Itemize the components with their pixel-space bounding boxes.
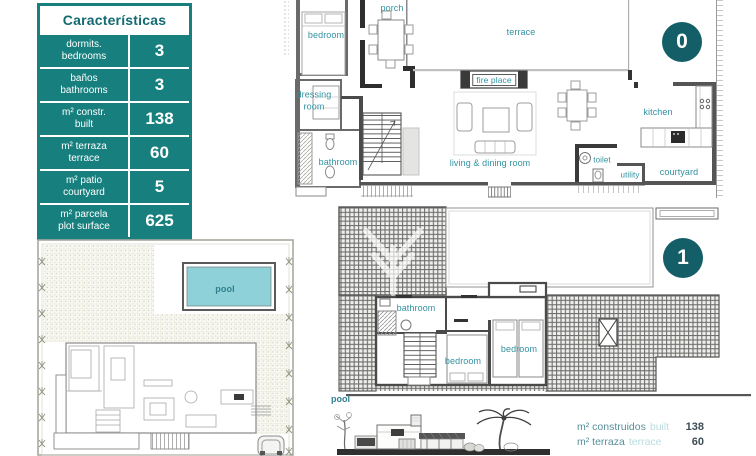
room-label-courtyard: courtyard xyxy=(660,167,698,177)
skylight xyxy=(599,319,617,346)
row-label: m² terraza terrace xyxy=(40,137,128,169)
room-label-utility: utility xyxy=(621,171,640,180)
room-label-bathroom: bathroom xyxy=(319,157,358,167)
room-label-porch: porch xyxy=(380,3,403,13)
room-label-fireplace: fire place xyxy=(472,74,516,86)
roof-terrace-hatch-left xyxy=(339,295,376,391)
dotted-ground-strip xyxy=(283,0,289,55)
table-row: m² constr. built 138 xyxy=(40,103,189,135)
pool-label: pool xyxy=(215,284,234,294)
first-floor-plan: bathroom bedroom bedroom xyxy=(336,203,756,403)
sink xyxy=(326,166,335,178)
ground-band xyxy=(337,449,550,455)
site-plan: pool xyxy=(36,230,300,456)
label-en: built xyxy=(75,119,93,132)
row-label: baños bathrooms xyxy=(40,69,128,101)
ground-floor-plan: bedroom porch terrace fire place dressin… xyxy=(283,0,723,200)
summary-value: 138 xyxy=(686,421,704,433)
summary-value: 60 xyxy=(692,436,704,448)
label-en: courtyard xyxy=(63,187,105,200)
roof-detail-bar xyxy=(656,208,718,219)
characteristics-title: Características xyxy=(40,6,189,33)
label-en: bathrooms xyxy=(60,85,107,98)
label-es: m² parcela xyxy=(60,209,107,222)
area-summary: m² construidos built 138 m² terraza terr… xyxy=(577,421,704,451)
label-en: bedrooms xyxy=(62,51,106,64)
summary-label-en: terrace xyxy=(629,436,662,448)
oven xyxy=(671,131,685,143)
roof-terrace-hatch-right xyxy=(546,295,719,391)
room-label-kitchen: kitchen xyxy=(643,107,672,117)
room-label-bedroom-left: bedroom xyxy=(445,356,481,366)
floor-1-badge: 1 xyxy=(663,238,703,278)
summary-label-en: built xyxy=(650,421,669,433)
palm-tree xyxy=(477,409,531,451)
garden-steps xyxy=(488,187,511,197)
room-label-bathroom: bathroom xyxy=(397,303,436,313)
table-row: baños bathrooms 3 xyxy=(40,69,189,101)
summary-row: m² construidos built 138 xyxy=(577,421,704,433)
row-label: dormits. bedrooms xyxy=(40,35,128,67)
house-elevation xyxy=(355,415,465,449)
room-label-toilet: toilet xyxy=(593,156,611,165)
label-es: m² terraza xyxy=(61,141,107,154)
row-value: 3 xyxy=(130,35,189,67)
row-value: 60 xyxy=(130,137,189,169)
elevation-drawing xyxy=(315,408,550,456)
room-label-bedroom: bedroom xyxy=(308,30,344,40)
property-floorplan-sheet: Características dormits. bedrooms 3 baño… xyxy=(0,0,756,456)
room-label-living-dining: living & dining room xyxy=(450,158,531,168)
site-plan-drawing xyxy=(36,230,300,456)
table-row: dormits. bedrooms 3 xyxy=(40,35,189,67)
toilet-fixture xyxy=(326,134,334,150)
row-value: 5 xyxy=(130,171,189,203)
pool-label: pool xyxy=(331,394,350,404)
label-es: dormits. xyxy=(66,39,102,52)
label-en: terrace xyxy=(68,153,99,166)
summary-row: m² terraza terrace 60 xyxy=(577,436,704,448)
row-label: m² patio courtyard xyxy=(40,171,128,203)
row-label: m² constr. built xyxy=(40,103,128,135)
house-elevation-sketch xyxy=(315,408,550,456)
tree xyxy=(335,413,352,450)
row-value: 3 xyxy=(130,69,189,101)
label-es: m² constr. xyxy=(62,107,106,120)
table-row: m² terraza terrace 60 xyxy=(40,137,189,169)
summary-label-es: m² construidos xyxy=(577,421,646,433)
label-es: m² patio xyxy=(66,175,102,188)
row-value: 138 xyxy=(130,103,189,135)
garden-texture xyxy=(43,245,154,342)
floor-0-badge: 0 xyxy=(662,22,702,62)
dining-set xyxy=(558,81,596,130)
characteristics-table: Características dormits. bedrooms 3 baño… xyxy=(37,3,192,240)
car xyxy=(258,436,284,456)
summary-label-es: m² terraza xyxy=(577,436,625,448)
room-label-dressing-room: dressing room xyxy=(290,89,338,112)
toilet-room xyxy=(575,144,617,185)
table-row: m² patio courtyard 5 xyxy=(40,171,189,203)
shower xyxy=(298,133,312,184)
living-room-furniture xyxy=(454,92,536,155)
bed xyxy=(302,12,345,75)
ground-floor-drawing xyxy=(283,0,723,200)
room-label-terrace: terrace xyxy=(507,27,536,37)
room-label-bedroom-right: bedroom xyxy=(501,344,537,354)
property-edge-hatch xyxy=(717,0,723,198)
staircase xyxy=(341,96,419,180)
house-footprint xyxy=(54,343,271,449)
staircase xyxy=(404,333,436,385)
label-es: baños xyxy=(70,73,97,86)
